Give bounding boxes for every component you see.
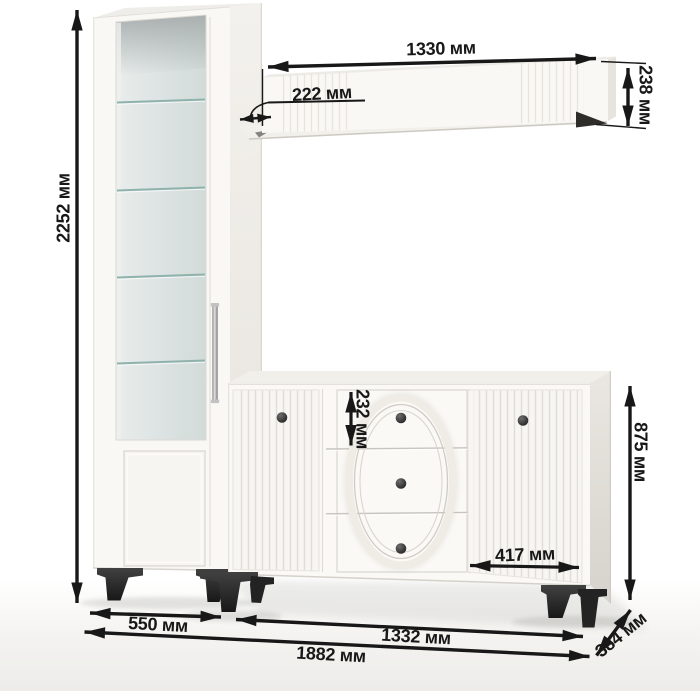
handle-mount-bottom <box>211 400 219 404</box>
dim-tick-shelf-bottom <box>596 125 646 129</box>
diagram-canvas <box>0 0 700 691</box>
handle-mount-top <box>211 303 219 307</box>
left-door-knob <box>277 412 288 423</box>
dim-arrow-door-width <box>470 566 579 568</box>
dim-label-cabinet-width: 550 мм <box>128 613 189 637</box>
sideboard-top-face <box>228 371 611 383</box>
cabinet-handle <box>212 303 217 403</box>
cabinet-leg-left <box>97 568 143 601</box>
dim-label-sideboard-width: 1332 мм <box>381 625 452 650</box>
drawer-knob-3 <box>396 543 407 554</box>
drawer-knob-1 <box>396 413 407 424</box>
dim-label-drawer-height: 232 мм <box>352 389 373 449</box>
cabinet-bottom-panel <box>124 451 205 566</box>
right-door-knob <box>518 415 529 426</box>
drawer-knob-2 <box>396 478 407 489</box>
sideboard-side-panel <box>590 371 611 604</box>
dim-label-shelf-height: 238 мм <box>635 65 656 125</box>
cabinet-side-panel <box>230 3 262 383</box>
dim-label-sideboard-height: 875 мм <box>630 422 651 482</box>
glass-top-shade <box>116 15 206 76</box>
furniture-dimension-diagram: 2252 мм 1330 мм 222 мм 238 мм 232 мм 417… <box>0 0 700 691</box>
left-door-fluting <box>237 390 316 571</box>
glass-left-highlight <box>116 23 121 440</box>
shelf-end-cap <box>608 57 616 122</box>
dim-label-total-width: 1882 мм <box>296 643 367 668</box>
dim-label-cabinet-height: 2252 мм <box>54 173 75 243</box>
dim-label-shelf-depth: 222 мм <box>292 82 353 106</box>
dim-label-door-width: 417 мм <box>495 543 556 566</box>
glass-door-window <box>116 15 206 440</box>
dim-label-shelf-length: 1330 мм <box>406 38 476 61</box>
shelf-fluting-right <box>517 61 584 124</box>
